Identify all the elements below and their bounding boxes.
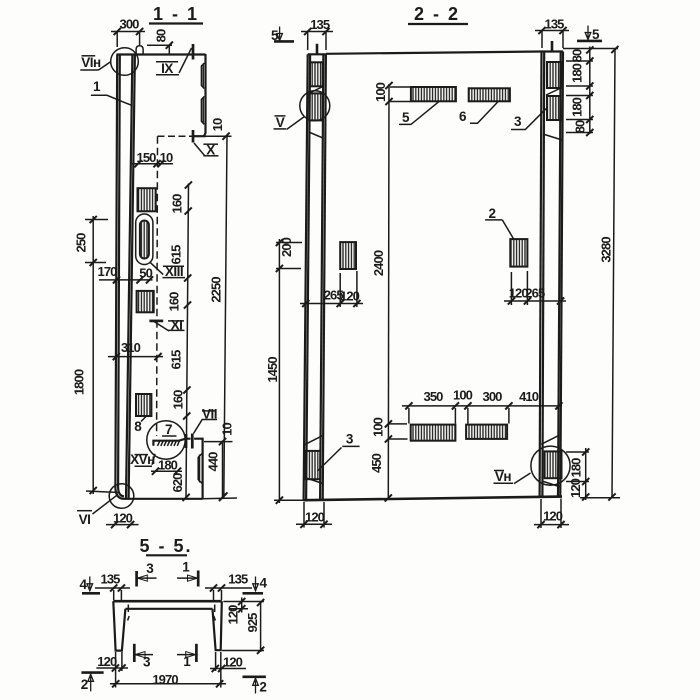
svg-text:80: 80 — [573, 120, 588, 133]
svg-text:1: 1 — [93, 79, 101, 94]
svg-text:450: 450 — [369, 453, 384, 473]
svg-text:135: 135 — [228, 572, 248, 587]
svg-text:180: 180 — [570, 97, 585, 117]
svg-text:V: V — [276, 115, 285, 130]
svg-text:350: 350 — [424, 389, 444, 404]
svg-text:2 - 2: 2 - 2 — [414, 4, 460, 24]
svg-text:170: 170 — [98, 264, 118, 279]
svg-text:2: 2 — [488, 206, 495, 221]
svg-text:410: 410 — [519, 389, 539, 404]
svg-text:200: 200 — [279, 237, 294, 257]
svg-text:80: 80 — [154, 29, 169, 42]
svg-text:7: 7 — [165, 422, 172, 437]
svg-text:IX: IX — [161, 61, 173, 76]
svg-text:4: 4 — [259, 576, 267, 591]
svg-text:1 - 1: 1 - 1 — [153, 4, 199, 24]
svg-text:120: 120 — [543, 509, 563, 524]
svg-text:120: 120 — [568, 478, 583, 498]
svg-text:615: 615 — [169, 350, 184, 370]
svg-text:3280: 3280 — [599, 237, 614, 263]
svg-text:1: 1 — [182, 560, 190, 575]
svg-text:440: 440 — [206, 452, 221, 472]
svg-text:VI: VI — [79, 512, 91, 527]
svg-text:160: 160 — [170, 194, 185, 214]
svg-text:100: 100 — [453, 388, 473, 403]
svg-text:120: 120 — [223, 655, 243, 670]
svg-text:180: 180 — [158, 458, 178, 473]
svg-text:3: 3 — [143, 655, 151, 670]
svg-text:2250: 2250 — [209, 277, 224, 303]
svg-text:135: 135 — [545, 17, 565, 32]
svg-text:3: 3 — [346, 432, 354, 447]
svg-text:180: 180 — [569, 458, 584, 478]
svg-text:100: 100 — [373, 82, 388, 102]
svg-text:180: 180 — [570, 63, 585, 83]
svg-text:2: 2 — [259, 680, 266, 695]
svg-text:620: 620 — [170, 473, 185, 493]
svg-text:10: 10 — [220, 423, 235, 436]
svg-text:2: 2 — [81, 677, 88, 692]
svg-text:6: 6 — [459, 109, 467, 124]
svg-text:925: 925 — [245, 613, 260, 633]
svg-text:80: 80 — [570, 49, 585, 62]
svg-text:120: 120 — [305, 510, 325, 525]
svg-text:160: 160 — [167, 292, 182, 312]
svg-text:3: 3 — [514, 114, 522, 129]
svg-text:120: 120 — [97, 654, 117, 669]
svg-text:265: 265 — [525, 286, 545, 301]
svg-text:100: 100 — [371, 417, 386, 437]
svg-text:10: 10 — [210, 118, 225, 131]
svg-text:615: 615 — [169, 245, 184, 265]
svg-text:120: 120 — [225, 605, 240, 625]
svg-text:VIн: VIн — [81, 55, 101, 70]
svg-text:135: 135 — [101, 572, 121, 587]
svg-text:1450: 1450 — [265, 357, 280, 383]
svg-text:310: 310 — [121, 340, 141, 355]
svg-text:5: 5 — [402, 110, 410, 125]
svg-text:1970: 1970 — [152, 672, 178, 687]
svg-text:300: 300 — [120, 17, 140, 32]
svg-text:2400: 2400 — [371, 250, 386, 276]
svg-text:250: 250 — [74, 233, 89, 253]
svg-text:5 - 5.: 5 - 5. — [139, 536, 192, 556]
svg-text:4: 4 — [79, 577, 87, 592]
svg-text:3: 3 — [146, 561, 154, 576]
svg-text:1800: 1800 — [72, 369, 87, 395]
svg-text:300: 300 — [483, 389, 503, 404]
svg-text:160: 160 — [171, 390, 186, 410]
